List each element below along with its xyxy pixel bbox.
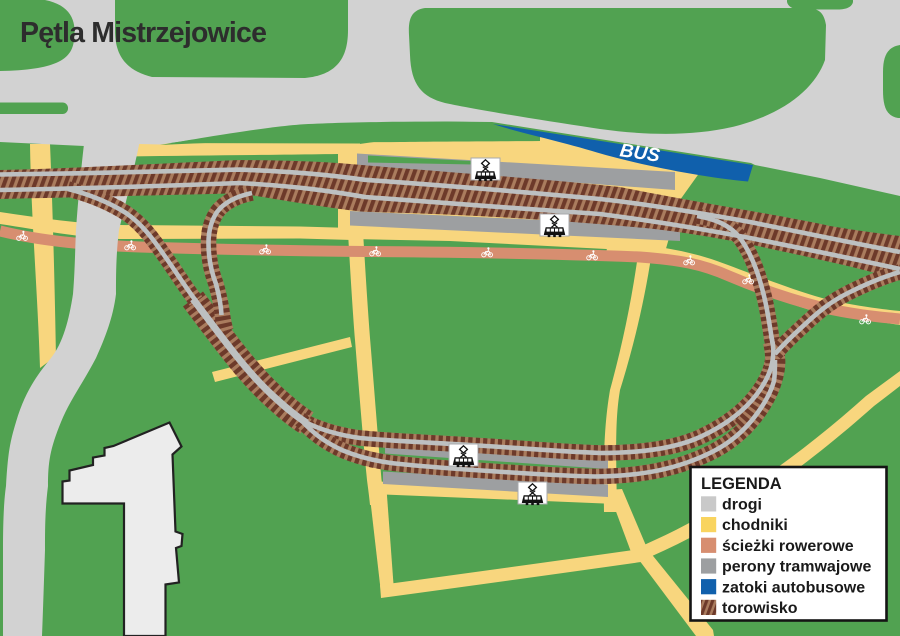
- svg-text:Pętla Mistrzejowice: Pętla Mistrzejowice: [20, 17, 266, 49]
- svg-text:ścieżki rowerowe: ścieżki rowerowe: [722, 538, 854, 555]
- svg-text:drogi: drogi: [722, 497, 762, 514]
- svg-text:perony tramwajowe: perony tramwajowe: [722, 559, 871, 576]
- svg-text:torowisko: torowisko: [722, 600, 798, 617]
- svg-text:LEGENDA: LEGENDA: [701, 475, 782, 493]
- svg-text:zatoki autobusowe: zatoki autobusowe: [722, 579, 865, 596]
- svg-text:chodniki: chodniki: [722, 517, 788, 534]
